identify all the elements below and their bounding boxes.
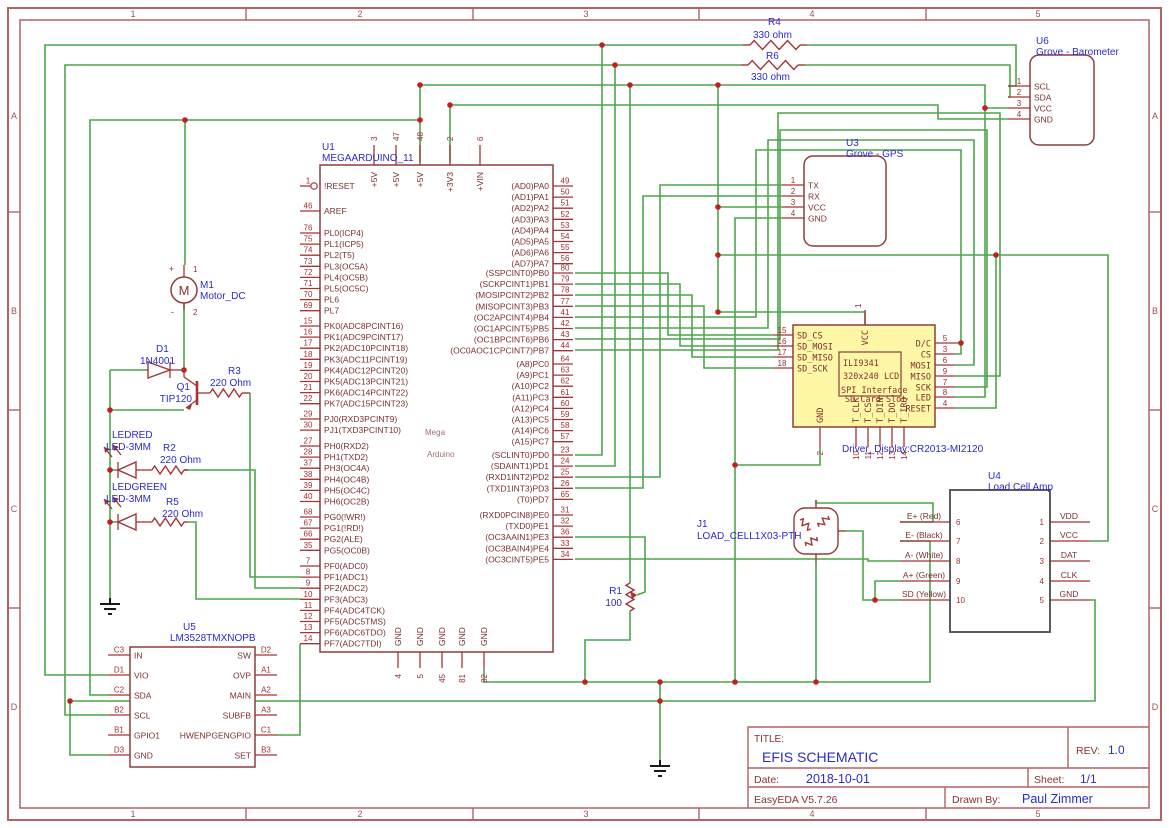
pin-label: SD_CS	[797, 332, 823, 342]
pin-label: (TXD1INT3)PD3	[487, 483, 550, 493]
r5-ref: R5	[166, 497, 179, 508]
m1-part: Motor_DC	[200, 291, 246, 302]
pin-label: VCC	[1034, 104, 1052, 114]
pin-label: GND	[134, 751, 153, 761]
schematic-title: EFIS SCHEMATIC	[762, 749, 878, 765]
net-aplus[interactable]	[875, 581, 900, 600]
pin-label: 9	[306, 579, 311, 588]
pin-label: 77	[561, 297, 570, 306]
pin-label: PF2(ADC2)	[324, 583, 368, 593]
pin-label: 39	[304, 481, 313, 490]
net-sda-pd1[interactable]	[575, 65, 615, 466]
pin-label: SCL	[1034, 82, 1051, 92]
pin-label: MOSI	[911, 362, 931, 372]
grid-col-label: 2	[357, 809, 362, 819]
m1-minus: -	[171, 307, 174, 317]
pin-label: 33	[561, 539, 570, 548]
pin-label: 82	[480, 673, 489, 682]
pin-label: 3	[1017, 99, 1022, 108]
pin-label: 6	[476, 136, 485, 141]
pin-label: AREF	[324, 206, 347, 216]
component-u4-load-cell-amp[interactable]: U4 Load Cell Amp	[950, 471, 1053, 632]
net-sd-yellow[interactable]	[846, 531, 900, 600]
net-base-drive[interactable]	[250, 393, 300, 577]
grid-col-label: 5	[1035, 9, 1040, 19]
pin-label: (T0)PD7	[517, 494, 549, 504]
net-lcd-gnd[interactable]	[735, 447, 820, 465]
d1-ref: D1	[156, 344, 169, 355]
pin-label: 3	[370, 136, 379, 141]
pin-label: 52	[561, 210, 570, 219]
pin-label: (TXD0)PE1	[506, 521, 550, 531]
pin-label: 61	[561, 388, 570, 397]
resistor-zigzag[interactable]	[152, 466, 184, 474]
pin-label: A1	[261, 666, 271, 675]
junction-dot	[872, 597, 878, 603]
pin-label: PK7(ADC15PCINT23)	[324, 399, 408, 409]
pin-label: 31	[561, 506, 570, 515]
junction-dot	[715, 252, 721, 258]
pin-label: 16	[304, 328, 313, 337]
pin-label: 20	[304, 372, 313, 381]
q1-ref: Q1	[177, 382, 191, 393]
junction-dot	[417, 82, 423, 88]
pin-label: 53	[561, 221, 570, 230]
tool-version: EasyEDA V5.7.26	[754, 794, 838, 806]
pin-label: 18	[304, 350, 313, 359]
drawn-by-value: Paul Zimmer	[1022, 792, 1093, 806]
pin-label: GND	[393, 627, 403, 646]
pin-label: 41	[561, 308, 570, 317]
pin-label: PH1(TXD2)	[324, 452, 368, 462]
junction-dot	[657, 698, 663, 704]
pin-label: +5V	[391, 172, 401, 188]
pin-label: 10	[304, 590, 313, 599]
grid-col-label: 2	[357, 9, 362, 19]
r4-value: 330 ohm	[753, 30, 792, 41]
component-j1-load-cell[interactable]: J1 LOAD_CELL1X03-PTH	[697, 508, 838, 554]
pin-label: (A8)PC0	[516, 359, 549, 369]
pin-label: 8	[306, 568, 311, 577]
pin-label: PL2(T5)	[324, 250, 355, 260]
u5-ref: U5	[183, 622, 196, 633]
r1-ref: R1	[609, 586, 622, 597]
junction-dot	[657, 679, 663, 685]
junction-dot	[447, 102, 453, 108]
net-sd-sck[interactable]	[575, 306, 773, 368]
pin-label: 1	[854, 303, 863, 308]
pin-label: (A11)PC3	[512, 392, 549, 402]
junction-dot	[182, 117, 188, 123]
pin-label: 9	[943, 367, 948, 376]
date-label: Date:	[754, 774, 779, 786]
pin-label: 79	[561, 275, 570, 284]
pin-label: 43	[561, 330, 570, 339]
motor-m-glyph: M	[179, 283, 190, 298]
m1-pin1: 1	[193, 265, 198, 274]
pin-label: 2	[1017, 88, 1022, 97]
pin-label: 29	[304, 410, 313, 419]
pin-label: 74	[304, 246, 313, 255]
pin-label: 15	[304, 317, 313, 326]
pin-label: 4	[791, 209, 796, 218]
net-sd-cs[interactable]	[575, 273, 773, 335]
pin-label: 44	[561, 341, 570, 350]
junction-dot	[417, 117, 423, 123]
pin-label: A+ (Green)	[903, 570, 945, 580]
component-d1-diode[interactable]: D1 1N4001	[140, 344, 184, 378]
pin-label: PJ0(RXD3PCINT9)	[324, 414, 397, 424]
pin-label: VCC	[1060, 530, 1078, 540]
u3-ref: U3	[846, 138, 859, 149]
pin-label: 58	[561, 421, 570, 430]
grid-row-label: B	[11, 306, 17, 316]
junction-dot	[993, 252, 999, 258]
pin-label: 34	[561, 550, 570, 559]
pin-label: 1	[1040, 518, 1045, 527]
pin-label: PH0(RXD2)	[324, 441, 369, 451]
pin-label: 70	[304, 290, 313, 299]
net-aminus[interactable]	[575, 559, 900, 561]
pin-label: 81	[458, 673, 467, 682]
pin-label: 36	[561, 528, 570, 537]
junction-dot	[599, 42, 605, 48]
pin-label: VIO	[134, 671, 149, 681]
grid-row-label: A	[11, 111, 17, 121]
pin-label: (RXD1INT2)PD2	[486, 472, 550, 482]
net-led1-out[interactable]	[188, 470, 300, 588]
pin-label: PF5(ADC5TMS)	[324, 617, 386, 627]
ledred-ref: LEDRED	[112, 430, 153, 441]
pin-label: 51	[561, 199, 570, 208]
pin-label: 27	[304, 437, 313, 446]
grid-col-label: 1	[130, 809, 135, 819]
r6-value: 330 ohm	[751, 72, 790, 83]
pin-label: PF7(ADC7TDI)	[324, 639, 382, 649]
pin-label: MISO	[911, 373, 931, 383]
grid-col-label: 5	[1035, 809, 1040, 819]
junction-dot	[715, 309, 721, 315]
pin-label: (OC3CINT5)PE5	[485, 554, 549, 564]
pin-label: VCC	[808, 203, 826, 213]
pin-label: 1	[1017, 77, 1022, 86]
component-q1-transistor[interactable]: Q1 TIP120	[160, 370, 210, 410]
pin-label: 68	[304, 508, 313, 517]
r2-value: 220 Ohm	[160, 455, 201, 466]
pin-label: 13	[304, 623, 313, 632]
grid-row-label: D	[1152, 702, 1159, 712]
pin-label: (A13)PC5	[512, 415, 550, 425]
pin-label: T_CS	[864, 403, 874, 423]
rev-value: 1.0	[1108, 743, 1125, 757]
pin-label: 5	[943, 334, 948, 343]
pin-label: +5V	[415, 172, 425, 188]
m1-plus: +	[169, 264, 174, 274]
pin-label: GND	[437, 627, 447, 646]
date-value: 2018-10-01	[806, 772, 870, 786]
pin-label: 59	[561, 410, 570, 419]
pin-label: 7	[306, 557, 311, 566]
pin-label: SDA	[1034, 93, 1052, 103]
pin-label: SET	[234, 751, 251, 761]
title-label: TITLE:	[754, 734, 784, 745]
resistor-zigzag[interactable]	[750, 41, 800, 50]
pin-label: (AD1)PA1	[511, 192, 549, 202]
pin-label: 21	[304, 383, 313, 392]
pin-label: SD_SCK	[797, 365, 829, 375]
grid-row-label: D	[11, 702, 18, 712]
pin-label: 55	[561, 243, 570, 252]
pin-label: 48	[416, 132, 425, 141]
grid-col-label: 3	[583, 809, 588, 819]
pin-label: +5V	[369, 172, 379, 188]
pin-label: (AD6)PA6	[511, 248, 549, 258]
pin-label: 8	[956, 557, 961, 566]
pin-label: PH4(OC4B)	[324, 474, 370, 484]
pin-label: T_DO	[888, 403, 898, 423]
pin-label: 7	[943, 378, 948, 387]
pin-label: 64	[561, 355, 570, 364]
pin-label: GND	[479, 627, 489, 646]
pin-label: PL1(ICP5)	[324, 239, 364, 249]
schematic-canvas: 1122334455AABBCCDD U1 MEGAARDUINO_11 Meg…	[0, 0, 1169, 828]
pin-label: 50	[561, 188, 570, 197]
pin-label: 30	[304, 421, 313, 430]
pin-label: 9	[956, 577, 961, 586]
pin-label: 19	[304, 361, 313, 370]
r6-ref: R6	[766, 51, 779, 62]
rev-label: REV:	[1076, 745, 1100, 757]
pin-label: PJ1(TXD3PCINT10)	[324, 425, 401, 435]
net-sd-mosi[interactable]	[575, 284, 773, 346]
junction-dot	[715, 82, 721, 88]
pin-label: 57	[561, 432, 570, 441]
pin-label: (MISOPCINT3)PB3	[475, 301, 549, 311]
pin-label: SDA	[134, 691, 152, 701]
pin-label: (AD3)PA3	[511, 214, 549, 224]
pin-label: RX	[808, 192, 820, 202]
pin-label: 37	[304, 459, 313, 468]
pin-label: 5	[1040, 596, 1045, 605]
pin-label: 49	[561, 177, 570, 186]
pin-label: (SCKPCINT1)PB1	[480, 279, 550, 289]
pin-label: (A14)PC6	[512, 426, 550, 436]
pin-label: 67	[304, 519, 313, 528]
ledgreen-ref: LEDGREEN	[112, 482, 167, 493]
pin-label: (AD0)PA0	[511, 181, 549, 191]
pin-label: SD_MOSI	[797, 343, 833, 353]
pin-label: VDD	[1060, 511, 1078, 521]
pin-label: PH5(OC4C)	[324, 485, 370, 495]
sheet-value: 1/1	[1080, 772, 1097, 786]
r3-ref: R3	[228, 366, 241, 377]
net-lcd-vcc[interactable]	[718, 312, 865, 325]
grid-col-label: 4	[809, 809, 814, 819]
pin-label: PL7	[324, 306, 339, 316]
title-block: TITLE: EFIS SCHEMATIC REV: 1.0 Date: 201…	[748, 727, 1149, 808]
pin-label: PG0(!WR!)	[324, 512, 366, 522]
component-m1-motor[interactable]: M + 1 - 2 M1 Motor_DC	[169, 264, 246, 317]
pin-label: 45	[438, 673, 447, 682]
net-gpio1[interactable]	[277, 644, 300, 735]
net-gps-gnd[interactable]	[735, 218, 782, 682]
schematic-svg: 1122334455AABBCCDD U1 MEGAARDUINO_11 Meg…	[0, 0, 1169, 828]
pin-label: (A9)PC1	[516, 370, 549, 380]
pin-label: PK2(ADC10PCINT18)	[324, 343, 408, 353]
u1-ref: U1	[322, 142, 335, 153]
pin-label: 69	[304, 301, 313, 310]
pin-label: GND	[1060, 589, 1079, 599]
pin-label: 25	[561, 468, 570, 477]
pin-label: 32	[561, 517, 570, 526]
d1-part: 1N4001	[140, 356, 175, 367]
junction-dot	[107, 467, 113, 473]
pin-label: T_CLK	[852, 397, 862, 423]
net-gps-tx[interactable]	[575, 185, 782, 477]
grid-row-label: A	[1152, 111, 1158, 121]
pin-label: 76	[304, 224, 313, 233]
pin-label: (A12)PC4	[512, 403, 550, 413]
pin-label: !RESET	[324, 181, 355, 191]
lcd-line-2: 320x240 LCD	[843, 372, 899, 382]
pin-label: 1	[791, 176, 796, 185]
pin-label: 2	[1040, 537, 1045, 546]
grid-col-label: 3	[583, 9, 588, 19]
pin-label: C1	[261, 726, 272, 735]
pin-label: PL0(ICP4)	[324, 228, 364, 238]
pin-label: PF3(ADC3)	[324, 594, 368, 604]
junction-dot	[958, 340, 964, 346]
pin-label: 71	[304, 279, 313, 288]
pin-label: 6	[943, 356, 948, 365]
pin-label: PK4(ADC12PCINT20)	[324, 365, 408, 375]
pin-label: 75	[304, 235, 313, 244]
junction-dot	[982, 105, 988, 111]
pin-label: PK1(ADC9PCINT17)	[324, 332, 404, 342]
pin-label: 66	[304, 530, 313, 539]
pin-label: 17	[778, 348, 787, 357]
pin-label: PH6(OC2B)	[324, 497, 370, 507]
junction-dot	[732, 462, 738, 468]
pin-label: SW	[237, 651, 251, 661]
pin-label: (OC3BAIN4)PE4	[485, 543, 549, 553]
pin-label: (SSPCINT0)PB0	[486, 268, 550, 278]
net-3v3-rail[interactable]	[450, 105, 1008, 119]
pin-label: (RXD0PCIN8)PE0	[480, 510, 550, 520]
pin-label: 4	[1040, 577, 1045, 586]
pin-label: SD (Yellow)	[902, 589, 946, 599]
pin-label: (MOSIPCINT2)PB2	[475, 290, 549, 300]
r4-ref: R4	[768, 17, 781, 28]
pin-label: PG1(!RD!)	[324, 523, 364, 533]
pin-label: 4	[1017, 110, 1022, 119]
pin-label: 7	[956, 537, 961, 546]
junction-dot	[67, 698, 73, 704]
r3-value: 220 Ohm	[210, 378, 251, 389]
lcd-line-1: ILI9341	[843, 359, 879, 369]
pin-label: 73	[304, 257, 313, 266]
pin-label: +VIN	[475, 172, 485, 191]
pin-label: (SCLINT0)PD0	[492, 450, 549, 460]
pin-label: 38	[304, 470, 313, 479]
pin-label: 54	[561, 232, 570, 241]
pin-label: 12	[876, 450, 885, 459]
pin-label: 4	[394, 673, 403, 678]
net-sd-miso[interactable]	[575, 295, 773, 357]
grid-col-label: 4	[809, 9, 814, 19]
pin-label: 16	[778, 337, 787, 346]
pin-label: GPIO1	[134, 731, 160, 741]
pin-label: 72	[304, 268, 313, 277]
ground-symbol-center	[650, 760, 670, 776]
pin-label: VCC	[861, 330, 871, 345]
pin-label: 47	[392, 132, 401, 141]
pin-label: PK6(ADC14PCINT22)	[324, 388, 408, 398]
junction-dot	[612, 62, 618, 68]
u1-part: MEGAARDUINO_11	[322, 153, 414, 164]
pin-label: 3	[1040, 557, 1045, 566]
pin-label: 10	[852, 450, 861, 459]
pin-label: B1	[114, 726, 124, 735]
pin-label: HWENPGENGPIO	[180, 731, 252, 741]
drawn-by-label: Drawn By:	[952, 794, 1000, 806]
pin-label: IN	[134, 651, 143, 661]
net-r1-bottom[interactable]	[585, 611, 630, 682]
u5-part: LM3528TMXNOPB	[170, 633, 256, 644]
net-u5-gnd[interactable]	[70, 701, 108, 755]
net-scl-pd0[interactable]	[575, 45, 602, 455]
pin-label: OVP	[233, 671, 251, 681]
pin-label: GND	[808, 214, 827, 224]
pin-label: 22	[304, 394, 313, 403]
pin-label: D/C	[916, 340, 931, 350]
net-lcd-miso[interactable]	[575, 113, 1000, 376]
net-sda-to-barometer[interactable]	[805, 65, 1010, 97]
pin-label: CS	[921, 351, 931, 361]
pin-label: GND	[816, 408, 826, 423]
junction-dot	[627, 82, 633, 88]
pin-label: (OC2APCINT4)PB4	[474, 312, 549, 322]
net-gps-rx[interactable]	[575, 196, 782, 488]
pin-label: PL3(OC5A)	[324, 261, 368, 271]
pin-label: (AD5)PA5	[511, 237, 549, 247]
pin-label: D1	[114, 666, 125, 675]
pin-label: 24	[561, 457, 570, 466]
pin-label: +3V3	[445, 172, 455, 192]
pin-label: (SDAINT1)PD1	[491, 461, 549, 471]
ground-symbol-left	[100, 598, 120, 614]
pin-label: PK5(ADC13PCINT21)	[324, 377, 408, 387]
junction-dot	[582, 679, 588, 685]
u3-part: Grove - GPS	[846, 149, 904, 160]
resistor-zigzag[interactable]	[210, 389, 242, 397]
pin-label: 17	[304, 339, 313, 348]
pin-label: T_DIN	[876, 397, 886, 423]
pin-label: 18	[778, 359, 787, 368]
m1-pin2: 2	[193, 308, 198, 317]
pin-label: 26	[561, 479, 570, 488]
pin-label: 35	[304, 541, 313, 550]
pin-label: (OC1BPCINT6)PB6	[474, 335, 549, 345]
grid-row-label: C	[1152, 504, 1159, 514]
pin-label: 2	[791, 187, 796, 196]
u1-center-2: Arduino	[427, 450, 455, 459]
junction-dot	[715, 204, 721, 210]
pin-label: GND	[415, 627, 425, 646]
pin-label: A- (White)	[905, 550, 943, 560]
pin-label: 1	[306, 177, 311, 186]
pin-label: PG5(OC0B)	[324, 545, 370, 555]
